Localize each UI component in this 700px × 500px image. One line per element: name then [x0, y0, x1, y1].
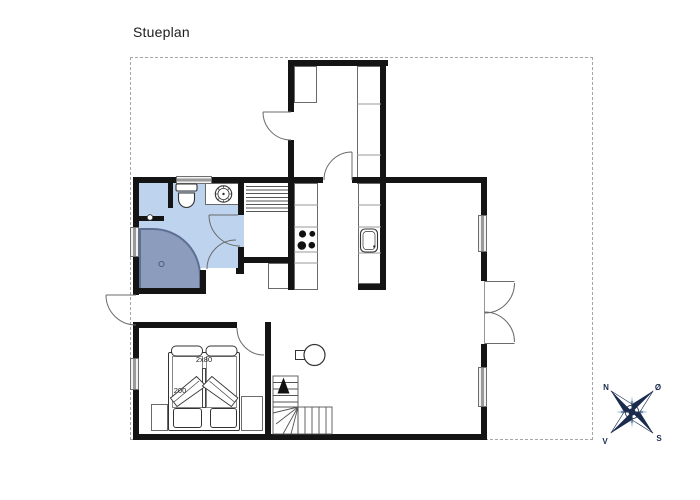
staircase	[273, 376, 332, 434]
floorplan-canvas: Stueplan	[0, 0, 700, 500]
bed-width-label: 2x80	[189, 355, 219, 364]
compass-label-west: V	[602, 437, 608, 446]
washbasin-icon	[215, 186, 231, 202]
compass-label-south: S	[656, 434, 662, 443]
compass-label-east: Ø	[655, 383, 661, 392]
wood-stove-icon	[296, 345, 326, 366]
bed-length-label: 200	[170, 386, 190, 395]
compass-label-north: N	[603, 383, 609, 392]
kitchen-sink-icon	[361, 229, 378, 252]
compass-rose-icon: N Ø S V	[590, 370, 675, 455]
shower-drain	[159, 261, 164, 266]
toilet-icon	[176, 184, 197, 208]
stairs-up-arrow-icon	[278, 378, 290, 394]
bathroom-fitting-dot	[147, 215, 153, 221]
stove-burners-icon	[298, 230, 316, 249]
plan-symbols-layer: N Ø S V	[0, 0, 700, 500]
